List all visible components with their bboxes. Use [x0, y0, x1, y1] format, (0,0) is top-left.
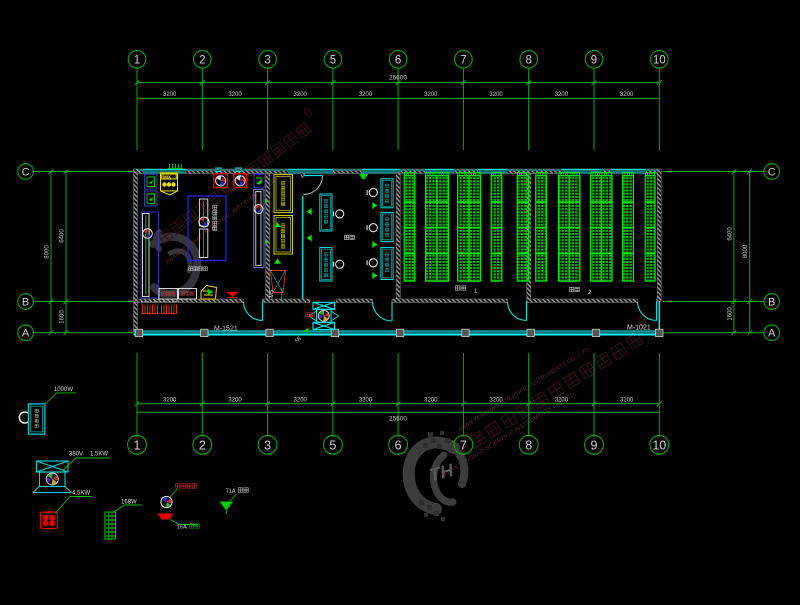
svg-text:C: C — [768, 167, 776, 179]
svg-text:8: 8 — [525, 439, 532, 453]
svg-text:3200: 3200 — [294, 397, 308, 403]
svg-text:16A: 16A — [177, 525, 187, 531]
svg-text:M-1021: M-1021 — [627, 325, 651, 332]
svg-text:4.5KW: 4.5KW — [72, 491, 90, 497]
svg-text:2: 2 — [199, 55, 205, 67]
svg-text:A: A — [768, 328, 776, 340]
svg-text:3: 3 — [264, 55, 270, 67]
svg-text:9: 9 — [591, 55, 597, 67]
svg-text:3200: 3200 — [489, 92, 503, 98]
svg-text:MS: MS — [269, 289, 275, 297]
svg-text:3: 3 — [264, 439, 271, 453]
svg-text:8000: 8000 — [45, 245, 51, 259]
svg-text:T1A: T1A — [226, 489, 236, 495]
svg-text:1: 1 — [474, 289, 477, 295]
svg-text:3200: 3200 — [359, 397, 373, 403]
svg-text:1600: 1600 — [60, 310, 66, 324]
svg-text:6: 6 — [395, 439, 402, 453]
svg-text:B: B — [22, 297, 29, 309]
svg-text:M-1521: M-1521 — [214, 326, 238, 333]
svg-text:5: 5 — [329, 439, 336, 453]
svg-text:168W: 168W — [121, 500, 137, 506]
svg-text:MIX: MIX — [163, 175, 171, 180]
svg-text:380V: 380V — [69, 452, 83, 458]
svg-text:3200: 3200 — [228, 92, 242, 98]
svg-text:3200: 3200 — [620, 397, 634, 403]
svg-text:7: 7 — [460, 439, 467, 453]
svg-text:3200: 3200 — [620, 92, 634, 98]
svg-text:5: 5 — [330, 55, 336, 67]
svg-text:2: 2 — [199, 439, 206, 453]
svg-text:8: 8 — [525, 55, 531, 67]
svg-text:B: B — [768, 297, 775, 309]
svg-text:10: 10 — [653, 55, 666, 67]
svg-text:1600: 1600 — [727, 307, 733, 321]
svg-text:3200: 3200 — [555, 397, 569, 403]
svg-text:3200: 3200 — [424, 397, 438, 403]
svg-text:7: 7 — [460, 55, 466, 67]
svg-text:6400: 6400 — [727, 227, 733, 241]
svg-text:3200: 3200 — [359, 92, 373, 98]
svg-text:1: 1 — [134, 439, 141, 453]
svg-text:6: 6 — [395, 55, 401, 67]
svg-text:25600: 25600 — [389, 416, 407, 423]
svg-text:6400: 6400 — [60, 229, 66, 243]
svg-text:10: 10 — [652, 439, 666, 453]
svg-text:3200: 3200 — [555, 92, 569, 98]
svg-text:9: 9 — [591, 439, 598, 453]
svg-text:2: 2 — [588, 290, 591, 296]
svg-text:3200: 3200 — [294, 92, 308, 98]
svg-text:C: C — [22, 167, 30, 179]
svg-text:3200: 3200 — [424, 92, 438, 98]
svg-text:3200: 3200 — [489, 397, 503, 403]
svg-text:3200: 3200 — [163, 92, 177, 98]
svg-text:8000: 8000 — [743, 244, 749, 258]
svg-text:1000W: 1000W — [54, 387, 73, 393]
svg-text:1: 1 — [134, 55, 140, 67]
svg-text:3200: 3200 — [163, 397, 177, 403]
svg-text:25600: 25600 — [389, 75, 407, 82]
svg-text:A: A — [22, 328, 30, 340]
svg-text:3200: 3200 — [228, 397, 242, 403]
svg-text:1.5KW: 1.5KW — [90, 452, 108, 458]
